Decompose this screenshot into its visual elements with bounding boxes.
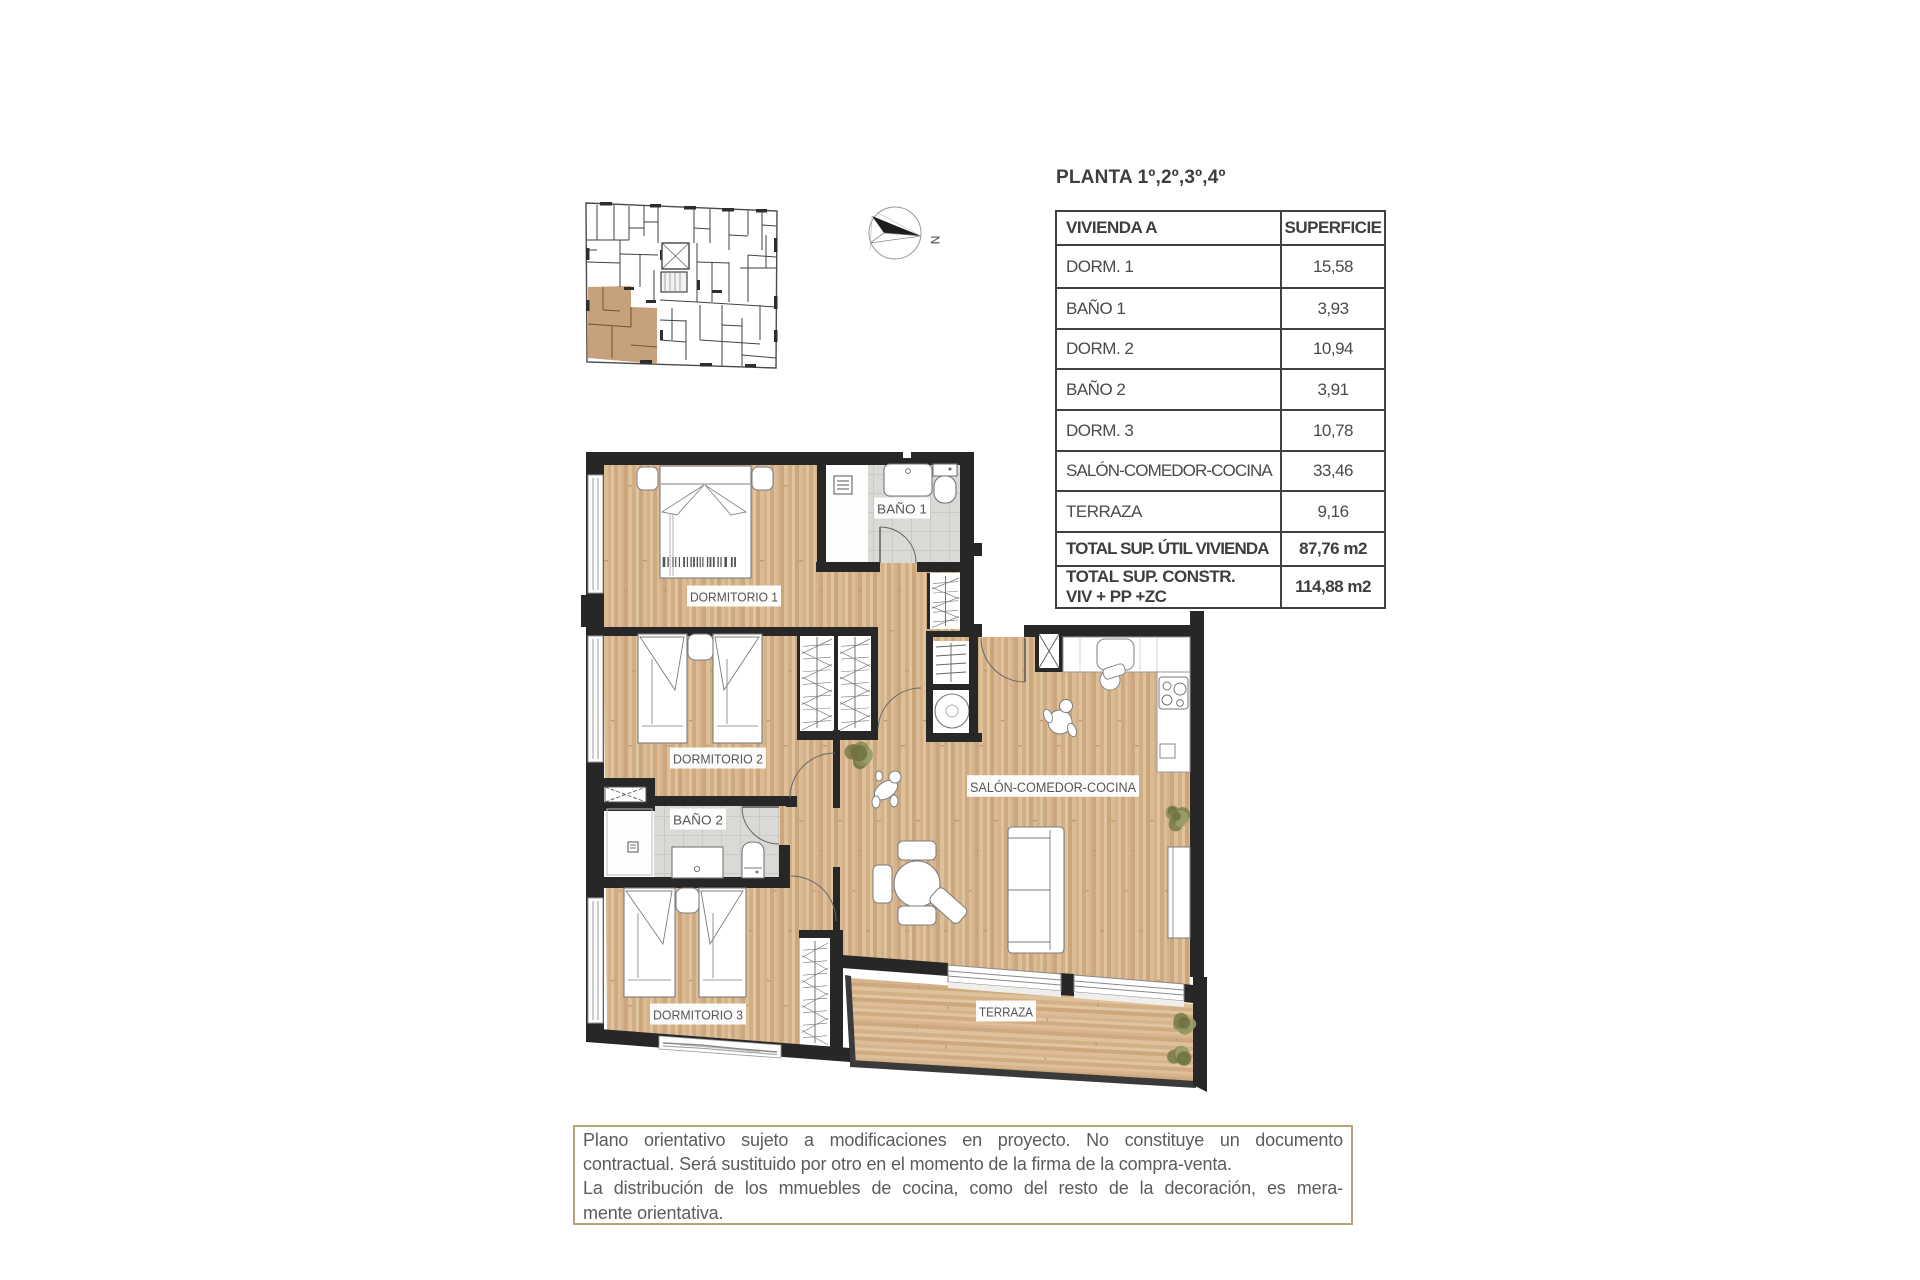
svg-text:DORMITORIO 3: DORMITORIO 3 — [653, 1008, 743, 1023]
svg-text:DORMITORIO 2: DORMITORIO 2 — [673, 752, 763, 767]
svg-text:DORMITORIO 1: DORMITORIO 1 — [690, 590, 778, 605]
svg-text:SALÓN-COMEDOR-COCINA: SALÓN-COMEDOR-COCINA — [970, 780, 1136, 795]
svg-text:N: N — [928, 236, 942, 245]
svg-text:BAÑO 2: BAÑO 2 — [673, 813, 723, 828]
svg-text:TERRAZA: TERRAZA — [979, 1005, 1033, 1020]
svg-text:BAÑO 1: BAÑO 1 — [877, 502, 927, 517]
